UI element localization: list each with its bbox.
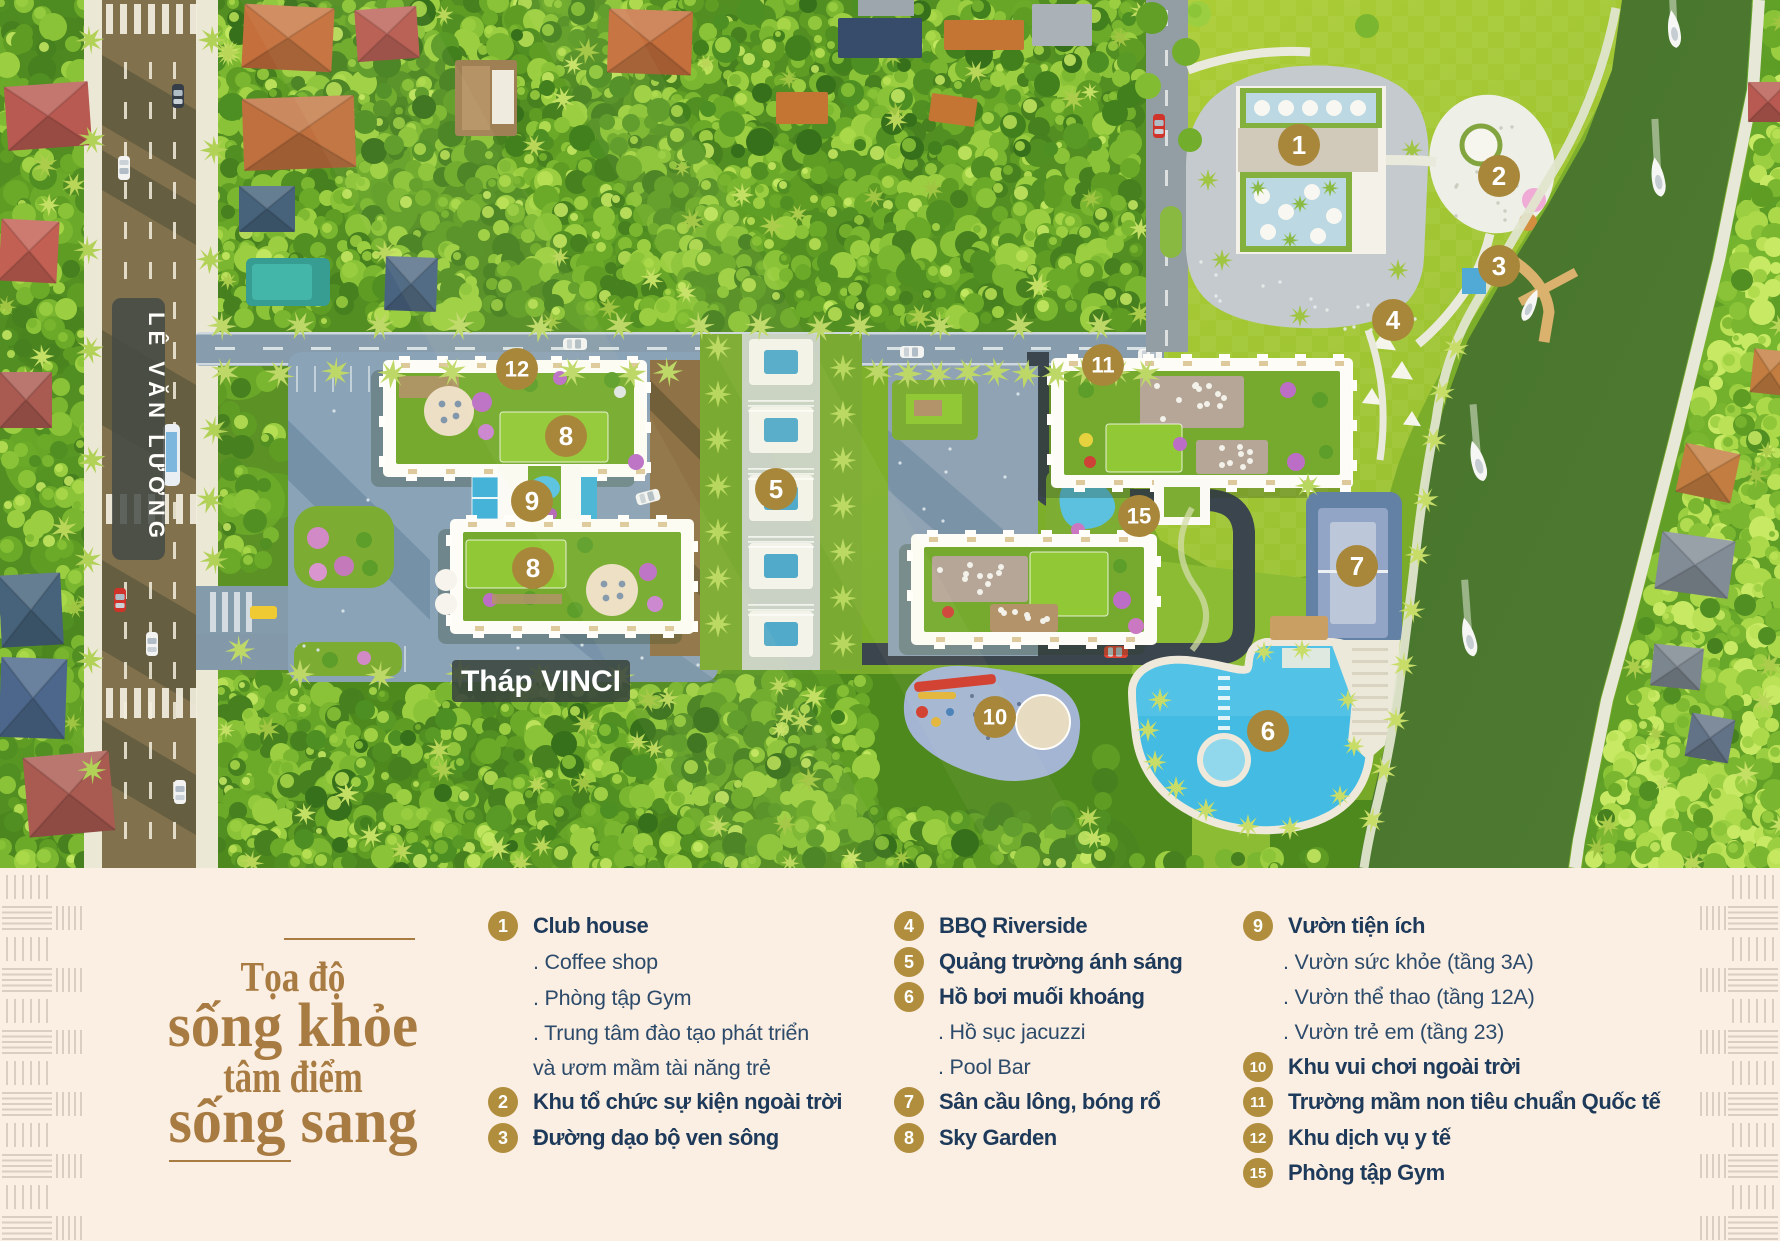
svg-text:7: 7	[1350, 551, 1364, 581]
svg-text:2: 2	[1492, 161, 1506, 191]
svg-text:8: 8	[559, 421, 573, 451]
svg-text:9: 9	[525, 486, 539, 516]
svg-text:6: 6	[1261, 716, 1275, 746]
svg-text:Tháp VINCI: Tháp VINCI	[461, 665, 621, 698]
svg-text:11: 11	[1091, 353, 1114, 378]
svg-text:1: 1	[1292, 130, 1306, 160]
svg-text:4: 4	[1386, 305, 1401, 335]
svg-text:5: 5	[769, 474, 783, 504]
svg-text:8: 8	[526, 553, 540, 583]
svg-text:15: 15	[1127, 504, 1151, 529]
svg-text:10: 10	[983, 705, 1007, 730]
svg-text:3: 3	[1492, 251, 1506, 281]
svg-text:12: 12	[505, 357, 529, 382]
